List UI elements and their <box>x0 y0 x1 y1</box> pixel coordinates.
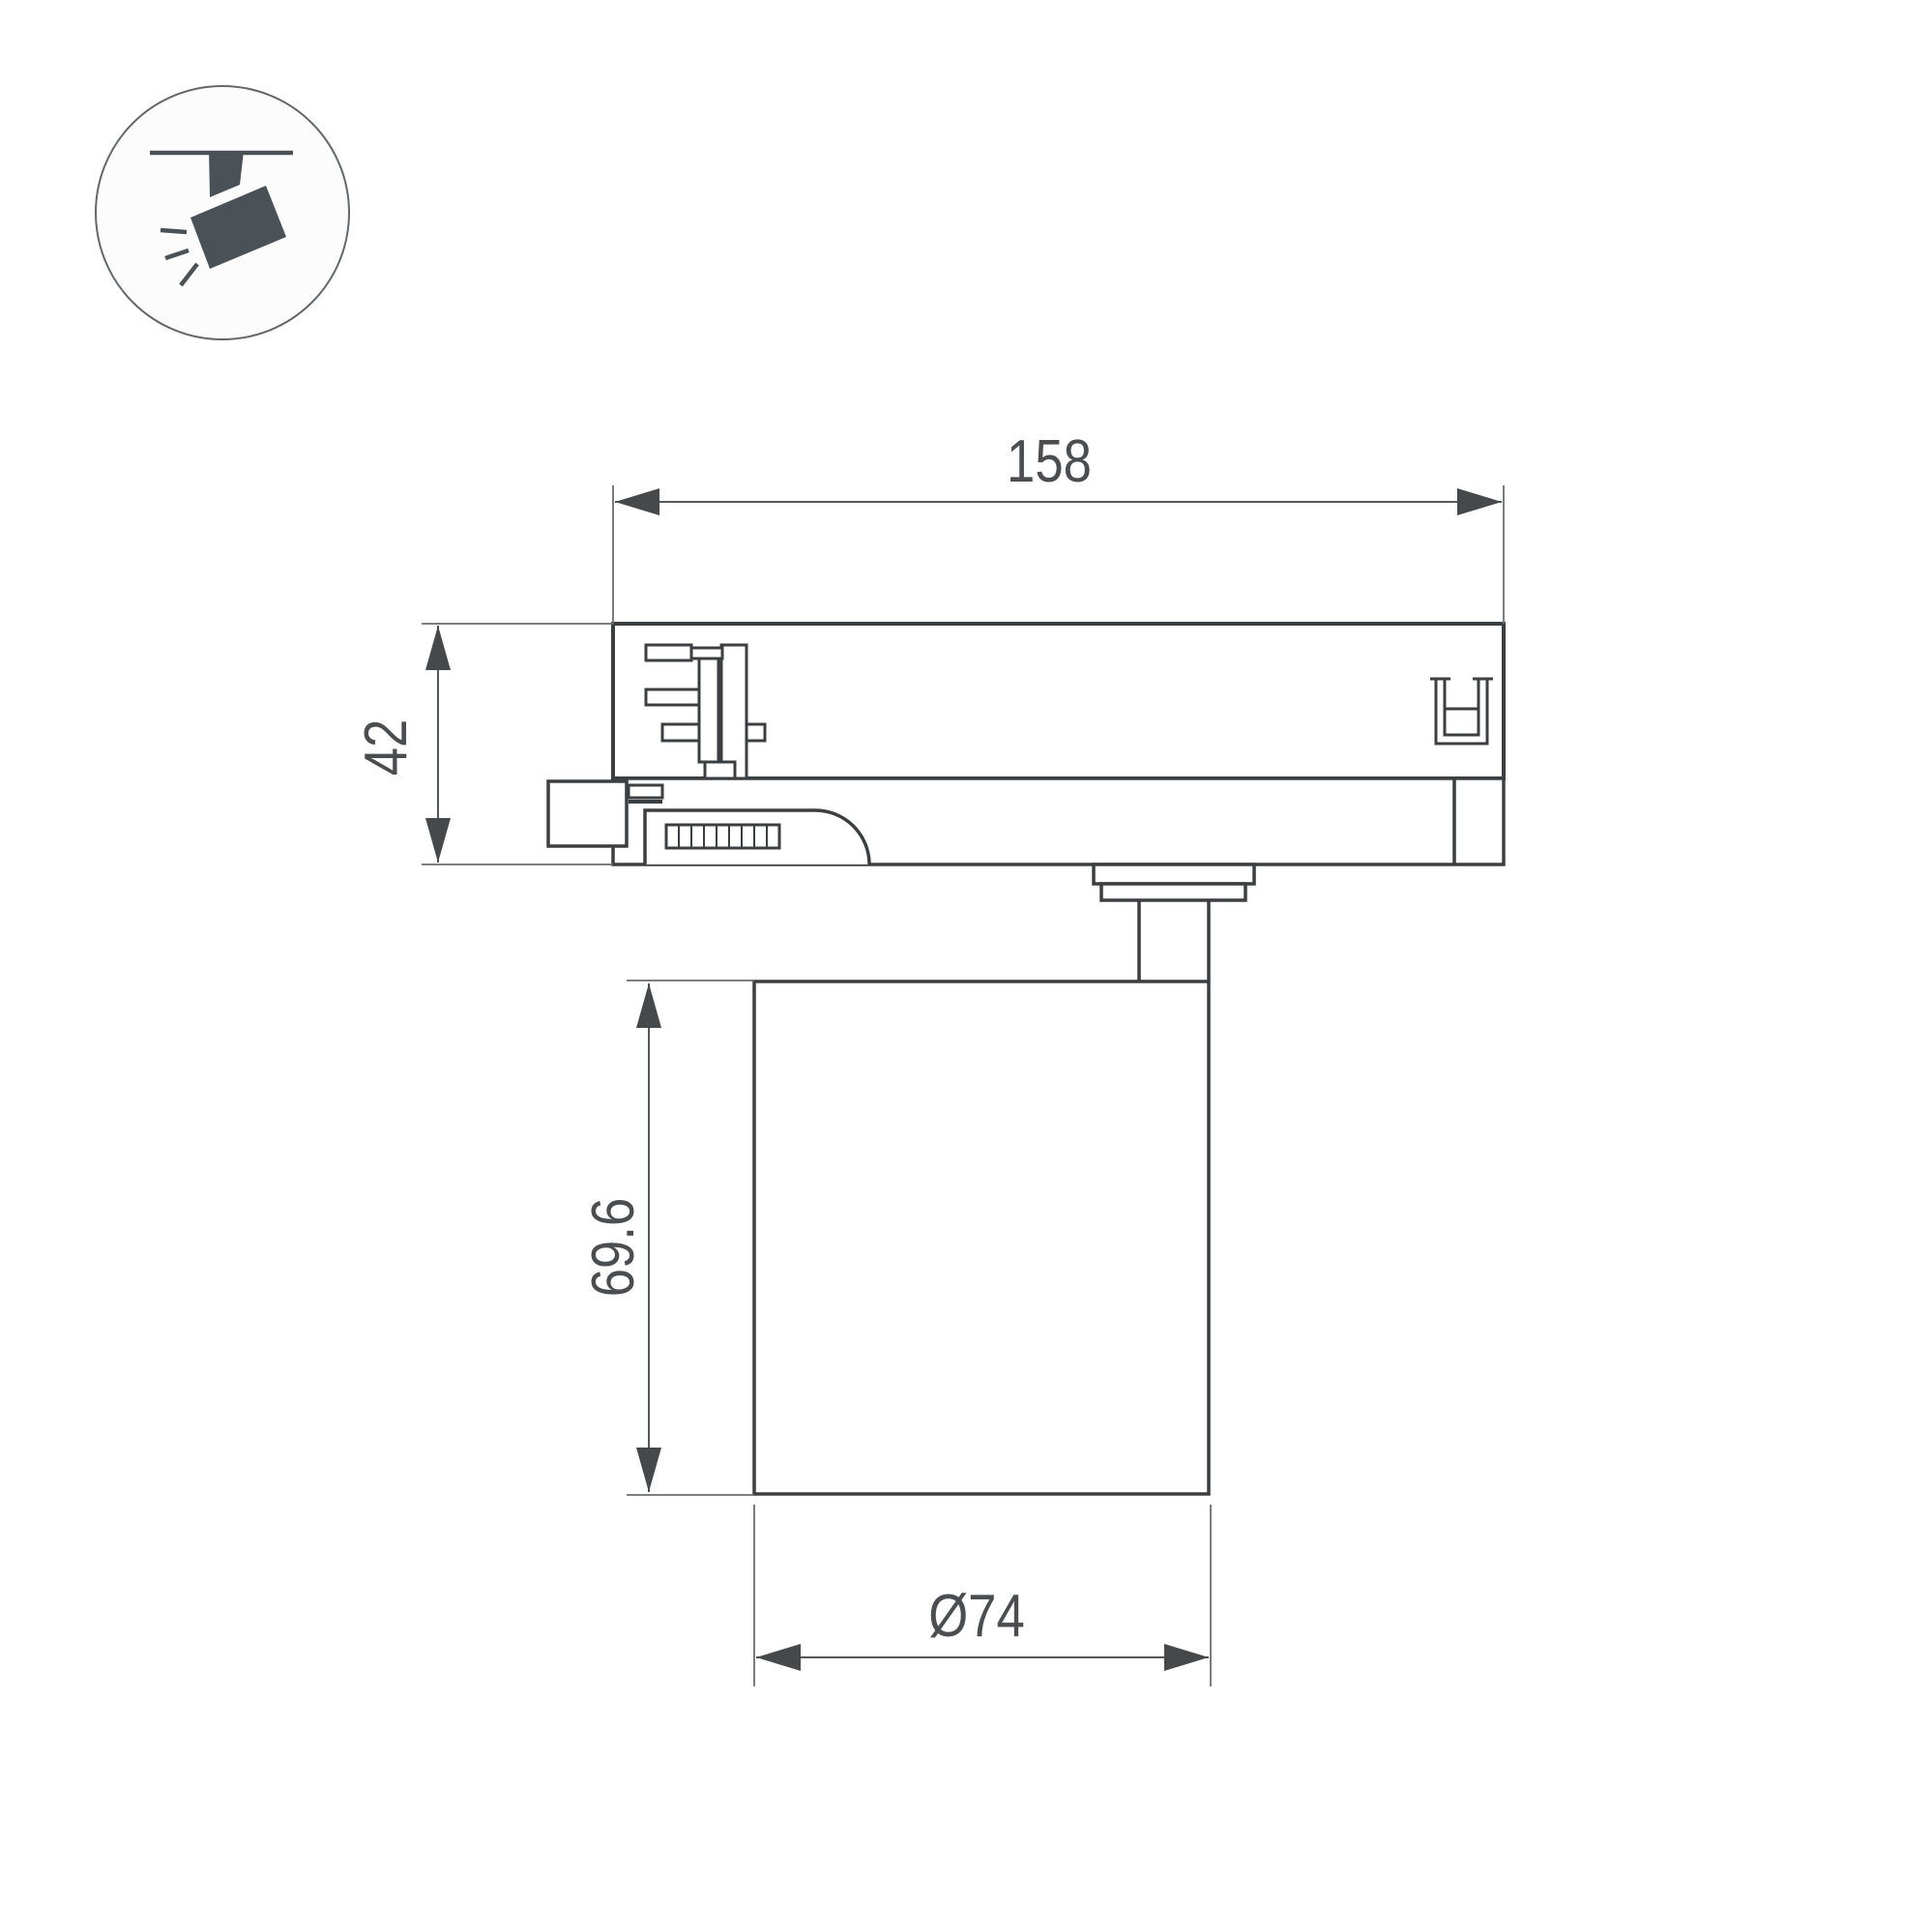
pivot-flange-lower <box>1101 884 1245 900</box>
dim-label-adapter-height: 42 <box>353 719 420 776</box>
dimension-body-diameter: Ø74 <box>754 1505 1211 1686</box>
arrowhead-right <box>1164 1644 1209 1671</box>
contact-prong-bottom <box>662 724 699 741</box>
contact-pin-foot <box>705 762 735 778</box>
contact-pin-cap <box>691 648 722 659</box>
clamp-block <box>548 781 627 846</box>
pivot-flange-upper <box>1094 864 1254 884</box>
arrowhead-top <box>636 983 661 1028</box>
technical-drawing-canvas: 158 42 69.6 Ø74 <box>0 0 1932 1932</box>
arrowhead-top <box>425 626 451 670</box>
arrowhead-left <box>615 488 659 515</box>
contact-prong-right <box>746 724 765 741</box>
dim-label-body-diameter: Ø74 <box>928 1583 1025 1650</box>
clamp-latch <box>629 785 662 798</box>
dimension-adapter-width: 158 <box>613 428 1504 624</box>
pivot-joint <box>1094 864 1254 981</box>
track-spotlight-icon <box>96 86 349 339</box>
arrowhead-bottom <box>636 1448 661 1492</box>
arrowhead-left <box>756 1644 801 1671</box>
contact-prong-top <box>646 645 691 660</box>
arrowhead-bottom <box>425 818 451 863</box>
arrowhead-right <box>1457 488 1502 515</box>
dimension-body-height: 69.6 <box>580 981 754 1495</box>
dim-label-body-height: 69.6 <box>580 1198 647 1298</box>
contact-pin <box>699 658 718 762</box>
drawing-page: 158 42 69.6 Ø74 <box>0 0 1932 1932</box>
contact-plate <box>721 645 746 778</box>
lamp-body-outline <box>754 981 1209 1494</box>
contact-prong-middle <box>646 689 699 705</box>
track-adapter <box>548 624 1504 864</box>
dim-label-adapter-width: 158 <box>1007 428 1092 495</box>
